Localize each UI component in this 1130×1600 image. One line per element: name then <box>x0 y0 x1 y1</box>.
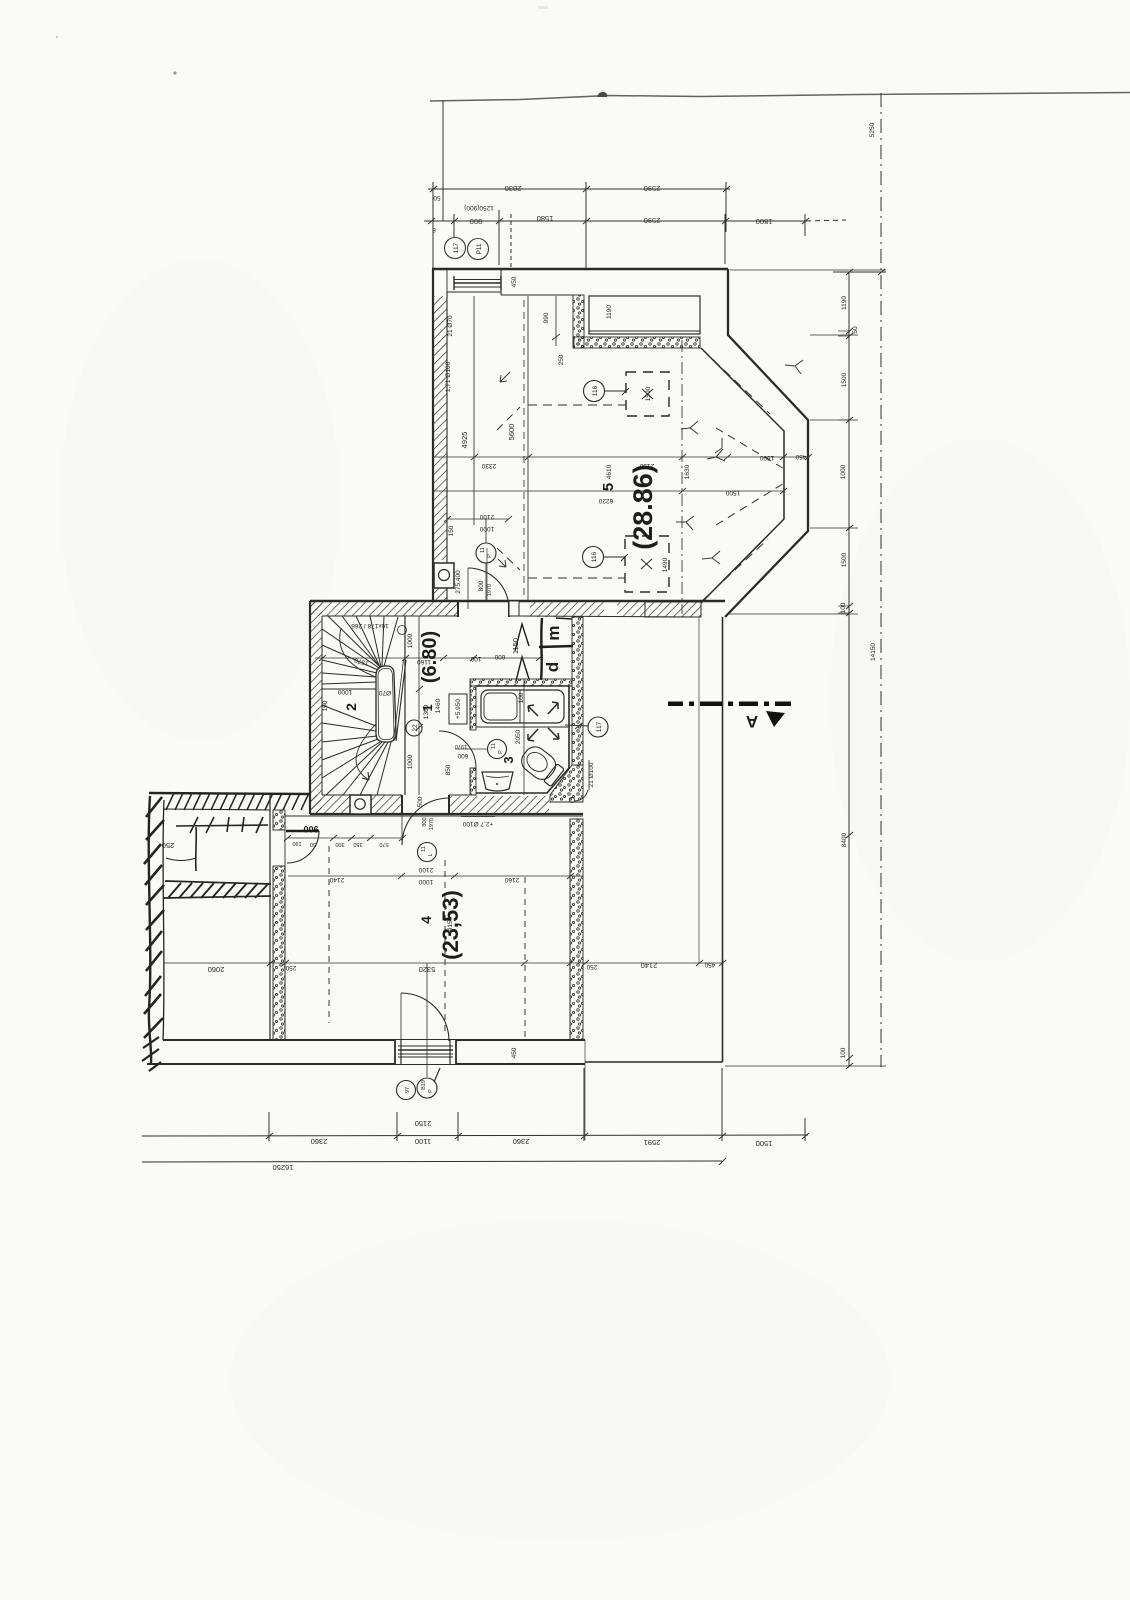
svg-text:1000: 1000 <box>840 464 847 479</box>
svg-text:8: 8 <box>432 226 436 233</box>
svg-text:1500: 1500 <box>756 217 773 226</box>
svg-text:100: 100 <box>470 655 481 662</box>
svg-text:450: 450 <box>511 1047 518 1058</box>
svg-text:350: 350 <box>353 841 362 847</box>
svg-text:2360: 2360 <box>311 1137 328 1146</box>
svg-text:900: 900 <box>303 824 318 834</box>
svg-text:1100: 1100 <box>415 1137 431 1146</box>
svg-text:4925: 4925 <box>460 432 469 449</box>
svg-text:450: 450 <box>704 961 715 968</box>
svg-text:11: 11 <box>491 743 497 749</box>
svg-text:1500: 1500 <box>759 454 774 461</box>
svg-text:1000: 1000 <box>407 633 414 648</box>
svg-text:190: 190 <box>322 700 329 711</box>
svg-text:117: 117 <box>453 242 460 253</box>
svg-text:116: 116 <box>592 385 599 396</box>
svg-text:P: P <box>428 1089 434 1093</box>
svg-text:1000: 1000 <box>479 525 494 532</box>
svg-text:21 Ø70: 21 Ø70 <box>447 315 454 337</box>
svg-text:2591: 2591 <box>644 1138 661 1147</box>
svg-text:L: L <box>428 853 434 856</box>
svg-text:150: 150 <box>448 525 455 536</box>
svg-text:800: 800 <box>422 817 428 826</box>
svg-text:16x178 / 266: 16x178 / 266 <box>351 622 389 629</box>
svg-text:5: 5 <box>600 483 617 491</box>
svg-text:250: 250 <box>285 964 296 971</box>
svg-text:2100: 2100 <box>479 513 494 520</box>
svg-text:6220: 6220 <box>598 497 613 504</box>
svg-text:1,71 Ø100: 1,71 Ø100 <box>445 361 452 392</box>
svg-text:275,400: 275,400 <box>455 570 462 594</box>
svg-text:1190: 1190 <box>606 305 613 319</box>
svg-text:2160: 2160 <box>504 876 519 883</box>
svg-text:600: 600 <box>494 653 505 660</box>
svg-text:1500: 1500 <box>756 1139 773 1148</box>
svg-text:d: d <box>543 662 562 672</box>
svg-text:190: 190 <box>292 840 301 846</box>
svg-text:250: 250 <box>558 354 565 365</box>
svg-text:+2,7 Ø100: +2,7 Ø100 <box>462 820 493 827</box>
svg-text:2360: 2360 <box>513 1137 530 1146</box>
svg-text:5250: 5250 <box>869 122 876 137</box>
svg-text:+5.950: +5.950 <box>455 699 462 719</box>
svg-text:990: 990 <box>543 312 550 323</box>
svg-text:1250(900): 1250(900) <box>464 204 494 211</box>
svg-text:2830: 2830 <box>505 184 522 193</box>
svg-text:3: 3 <box>501 756 516 763</box>
svg-text:2140: 2140 <box>641 961 658 970</box>
svg-text:2140: 2140 <box>329 876 344 883</box>
svg-text:250: 250 <box>586 963 597 970</box>
svg-text:116: 116 <box>591 551 598 562</box>
svg-text:1190: 1190 <box>841 296 848 310</box>
svg-text:800: 800 <box>478 580 485 591</box>
svg-text:1000: 1000 <box>337 688 352 695</box>
svg-text:1970: 1970 <box>455 743 467 749</box>
svg-text:900: 900 <box>470 217 483 226</box>
svg-text:P11: P11 <box>476 243 483 254</box>
svg-text:1000: 1000 <box>418 878 433 885</box>
svg-text:4610: 4610 <box>606 464 613 479</box>
svg-text:1580: 1580 <box>537 214 554 223</box>
svg-text:1490: 1490 <box>662 557 669 572</box>
svg-text:570: 570 <box>379 841 388 847</box>
svg-text:1500: 1500 <box>645 386 652 401</box>
svg-text:850: 850 <box>445 764 452 775</box>
svg-text:600: 600 <box>457 752 468 759</box>
svg-text:11: 11 <box>421 846 427 852</box>
svg-text:2590: 2590 <box>644 216 661 225</box>
svg-text:1970: 1970 <box>487 584 493 596</box>
svg-text:16250: 16250 <box>273 1163 294 1172</box>
svg-text:22: 22 <box>412 724 419 732</box>
svg-text:B19: B19 <box>421 1080 427 1090</box>
svg-text:5600: 5600 <box>507 424 516 441</box>
svg-text:2330: 2330 <box>481 462 496 469</box>
svg-text:117: 117 <box>596 721 603 732</box>
svg-text:100: 100 <box>840 1047 847 1058</box>
svg-text:P: P <box>487 554 493 558</box>
svg-text:2050: 2050 <box>515 729 522 744</box>
svg-text:1970: 1970 <box>429 818 435 830</box>
svg-text:50: 50 <box>852 326 859 334</box>
svg-text:50: 50 <box>310 841 316 847</box>
svg-text:2: 2 <box>343 703 359 711</box>
svg-text:(28.86): (28.86) <box>628 464 658 550</box>
svg-text:50: 50 <box>433 194 441 201</box>
svg-text:450: 450 <box>795 453 806 460</box>
svg-text:2150: 2150 <box>415 1119 432 1128</box>
svg-text:250: 250 <box>162 841 175 850</box>
svg-text:1500: 1500 <box>725 489 740 496</box>
svg-text:2060: 2060 <box>208 965 225 974</box>
svg-text:11: 11 <box>480 547 486 553</box>
svg-text:1: 1 <box>420 704 435 711</box>
svg-text:(23,53): (23,53) <box>438 890 463 960</box>
svg-text:1150: 1150 <box>511 638 520 654</box>
svg-text:1630: 1630 <box>684 464 691 479</box>
svg-text:14150: 14150 <box>870 643 877 661</box>
svg-text:A: A <box>746 712 758 731</box>
svg-text:1000: 1000 <box>407 754 414 769</box>
svg-text:300: 300 <box>335 841 344 847</box>
svg-text:m: m <box>544 625 563 640</box>
svg-text:97: 97 <box>405 1087 411 1093</box>
svg-text:100: 100 <box>840 602 847 613</box>
svg-text:450: 450 <box>511 276 518 287</box>
svg-text:1500: 1500 <box>841 552 848 567</box>
svg-text:2590: 2590 <box>644 184 661 193</box>
svg-text:P: P <box>498 750 504 754</box>
svg-text:Ø70: Ø70 <box>378 689 391 696</box>
svg-text:(6.80): (6.80) <box>419 631 441 683</box>
svg-text:4: 4 <box>418 916 434 924</box>
svg-text:8400: 8400 <box>841 832 848 847</box>
svg-text:1460: 1460 <box>435 698 442 713</box>
svg-text:2100: 2100 <box>418 866 433 873</box>
svg-text:1500: 1500 <box>841 372 848 387</box>
